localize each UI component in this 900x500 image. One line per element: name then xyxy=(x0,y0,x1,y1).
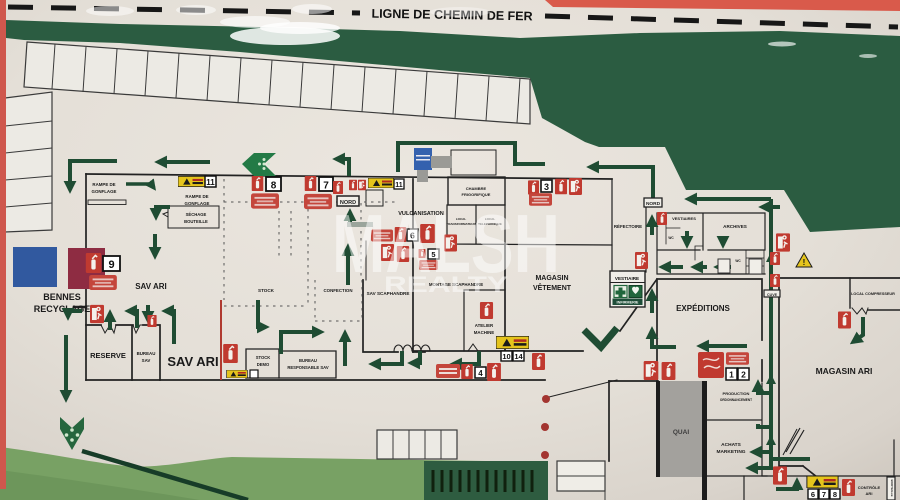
svg-text:RAMPE DE: RAMPE DE xyxy=(185,194,208,199)
svg-text:ACHATS: ACHATS xyxy=(721,442,741,448)
svg-text:2: 2 xyxy=(741,370,746,380)
svg-text:PRODUCTION: PRODUCTION xyxy=(723,391,750,396)
svg-text:DEMO: DEMO xyxy=(257,362,270,367)
svg-text:!: ! xyxy=(803,258,806,267)
svg-text:ARCHIVES: ARCHIVES xyxy=(723,224,747,229)
svg-text:6: 6 xyxy=(811,490,815,499)
svg-text:NORD: NORD xyxy=(646,201,661,207)
svg-text:VESTIAIRE: VESTIAIRE xyxy=(615,276,639,281)
svg-text:BUREAU: BUREAU xyxy=(299,358,317,363)
svg-text:ARI: ARI xyxy=(866,491,873,496)
svg-text:8: 8 xyxy=(833,490,837,499)
svg-text:WC: WC xyxy=(668,236,674,240)
svg-text:LOCAL COMPRESSEUR: LOCAL COMPRESSEUR xyxy=(851,292,895,296)
svg-text:RÉFECTOIRE: RÉFECTOIRE xyxy=(614,224,642,229)
svg-text:1: 1 xyxy=(729,370,734,380)
svg-text:STOCK: STOCK xyxy=(258,288,275,293)
svg-text:GONFLAGE: GONFLAGE xyxy=(185,201,210,206)
svg-text:BUREAU: BUREAU xyxy=(137,351,156,356)
svg-text:VESTIAIRES: VESTIAIRES xyxy=(672,216,696,221)
svg-text:MACHINE: MACHINE xyxy=(474,330,495,335)
svg-text:BENNES: BENNES xyxy=(43,292,81,302)
svg-text:MARKETING: MARKETING xyxy=(716,449,745,455)
svg-text:BOUTEILLE: BOUTEILLE xyxy=(890,480,894,497)
svg-text:8: 8 xyxy=(271,181,277,192)
svg-text:SÉCHAGE: SÉCHAGE xyxy=(186,212,207,217)
svg-text:MAGASIN ARI: MAGASIN ARI xyxy=(816,366,873,376)
svg-text:EXPÉDITIONS: EXPÉDITIONS xyxy=(676,304,730,313)
svg-text:INFIRMERIE: INFIRMERIE xyxy=(617,301,639,305)
svg-text:10: 10 xyxy=(502,352,510,361)
svg-text:7: 7 xyxy=(822,490,826,499)
svg-text:ORDONNANCEMENT: ORDONNANCEMENT xyxy=(720,398,752,402)
svg-text:QUAI: QUAI xyxy=(673,429,689,436)
svg-text:3: 3 xyxy=(544,182,549,192)
svg-text:SAV ARI: SAV ARI xyxy=(167,354,218,369)
svg-text:11: 11 xyxy=(395,182,403,189)
svg-text:CUVE: CUVE xyxy=(767,293,778,297)
svg-text:CHAMBRE: CHAMBRE xyxy=(466,186,487,191)
svg-text:RESERVE: RESERVE xyxy=(90,351,126,360)
svg-text:4: 4 xyxy=(478,369,483,378)
svg-text:7: 7 xyxy=(323,181,329,192)
svg-text:RAMPE DE: RAMPE DE xyxy=(92,182,115,187)
svg-text:11: 11 xyxy=(206,178,215,187)
svg-text:BOUTEILLE: BOUTEILLE xyxy=(184,219,208,224)
svg-text:STOCK: STOCK xyxy=(256,355,271,360)
svg-text:SAV: SAV xyxy=(142,358,151,363)
svg-text:14: 14 xyxy=(514,352,523,361)
svg-text:9: 9 xyxy=(108,259,114,271)
svg-text:ATELIER: ATELIER xyxy=(475,323,494,328)
svg-text:GONFLAGE: GONFLAGE xyxy=(92,189,117,194)
svg-text:CONTRÔLE: CONTRÔLE xyxy=(858,485,881,490)
svg-text:RESPONSABLE SAV: RESPONSABLE SAV xyxy=(287,365,329,370)
svg-text:WC: WC xyxy=(735,259,741,263)
svg-text:REALTY: REALTY xyxy=(384,272,508,297)
svg-text:SAV ARI: SAV ARI xyxy=(135,282,167,291)
